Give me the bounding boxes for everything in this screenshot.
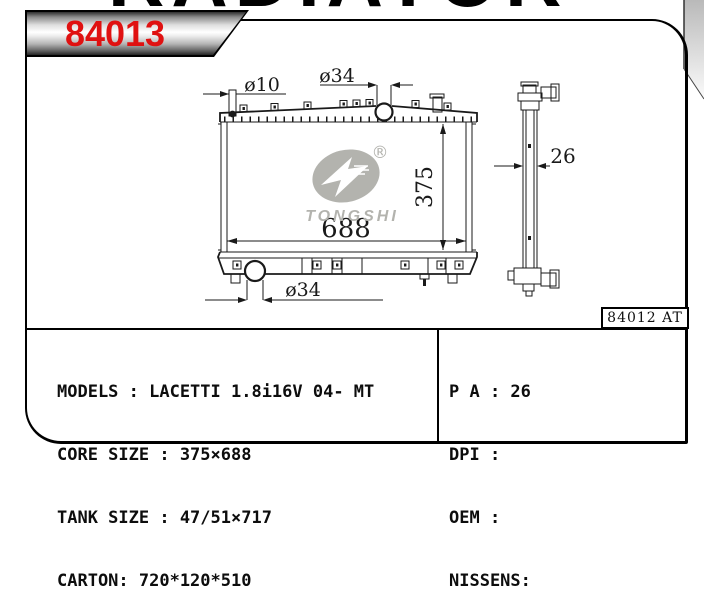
top-clips xyxy=(240,100,451,113)
catalog-page: { "page": { "top_title": "RADIATOR", "co… xyxy=(0,0,704,459)
reference-box: 84012 AT xyxy=(601,307,689,329)
spec-core-size: CORE SIZE : 375×688 xyxy=(57,444,374,467)
logo-registered-mark: ® xyxy=(372,143,389,163)
logo-brand-text: TONGSHI xyxy=(305,208,399,225)
horizontal-separator xyxy=(27,328,686,330)
spec-oem: OEM : xyxy=(449,507,531,530)
radiator-side-view xyxy=(508,82,559,296)
spec-models: MODELS : LACETTI 1.8i16V 04- MT xyxy=(57,381,374,404)
dim-bottom-pipe: ø34 xyxy=(285,279,321,301)
tongshi-logo: ® TONGSHI xyxy=(305,143,399,225)
dim-top-center-pipe: ø34 xyxy=(319,65,355,87)
spec-tank-size: TANK SIZE : 47/51×717 xyxy=(57,507,374,530)
spec-nissens: NISSENS: xyxy=(449,570,531,593)
spec-pa: P A : 26 xyxy=(449,381,531,404)
dim-core-height: 375 xyxy=(413,166,438,208)
spec-block-right: P A : 26 DPI : OEM : NISSENS: xyxy=(449,341,531,613)
spec-carton: CARTON: 720*120*510 xyxy=(57,570,374,593)
vertical-separator xyxy=(437,330,439,442)
dim-thickness: 26 xyxy=(550,144,575,168)
spec-dpi: DPI : xyxy=(449,444,531,467)
spec-block-left: MODELS : LACETTI 1.8i16V 04- MT CORE SIZ… xyxy=(57,341,374,613)
dim-top-left-pipe: ø10 xyxy=(244,74,280,96)
